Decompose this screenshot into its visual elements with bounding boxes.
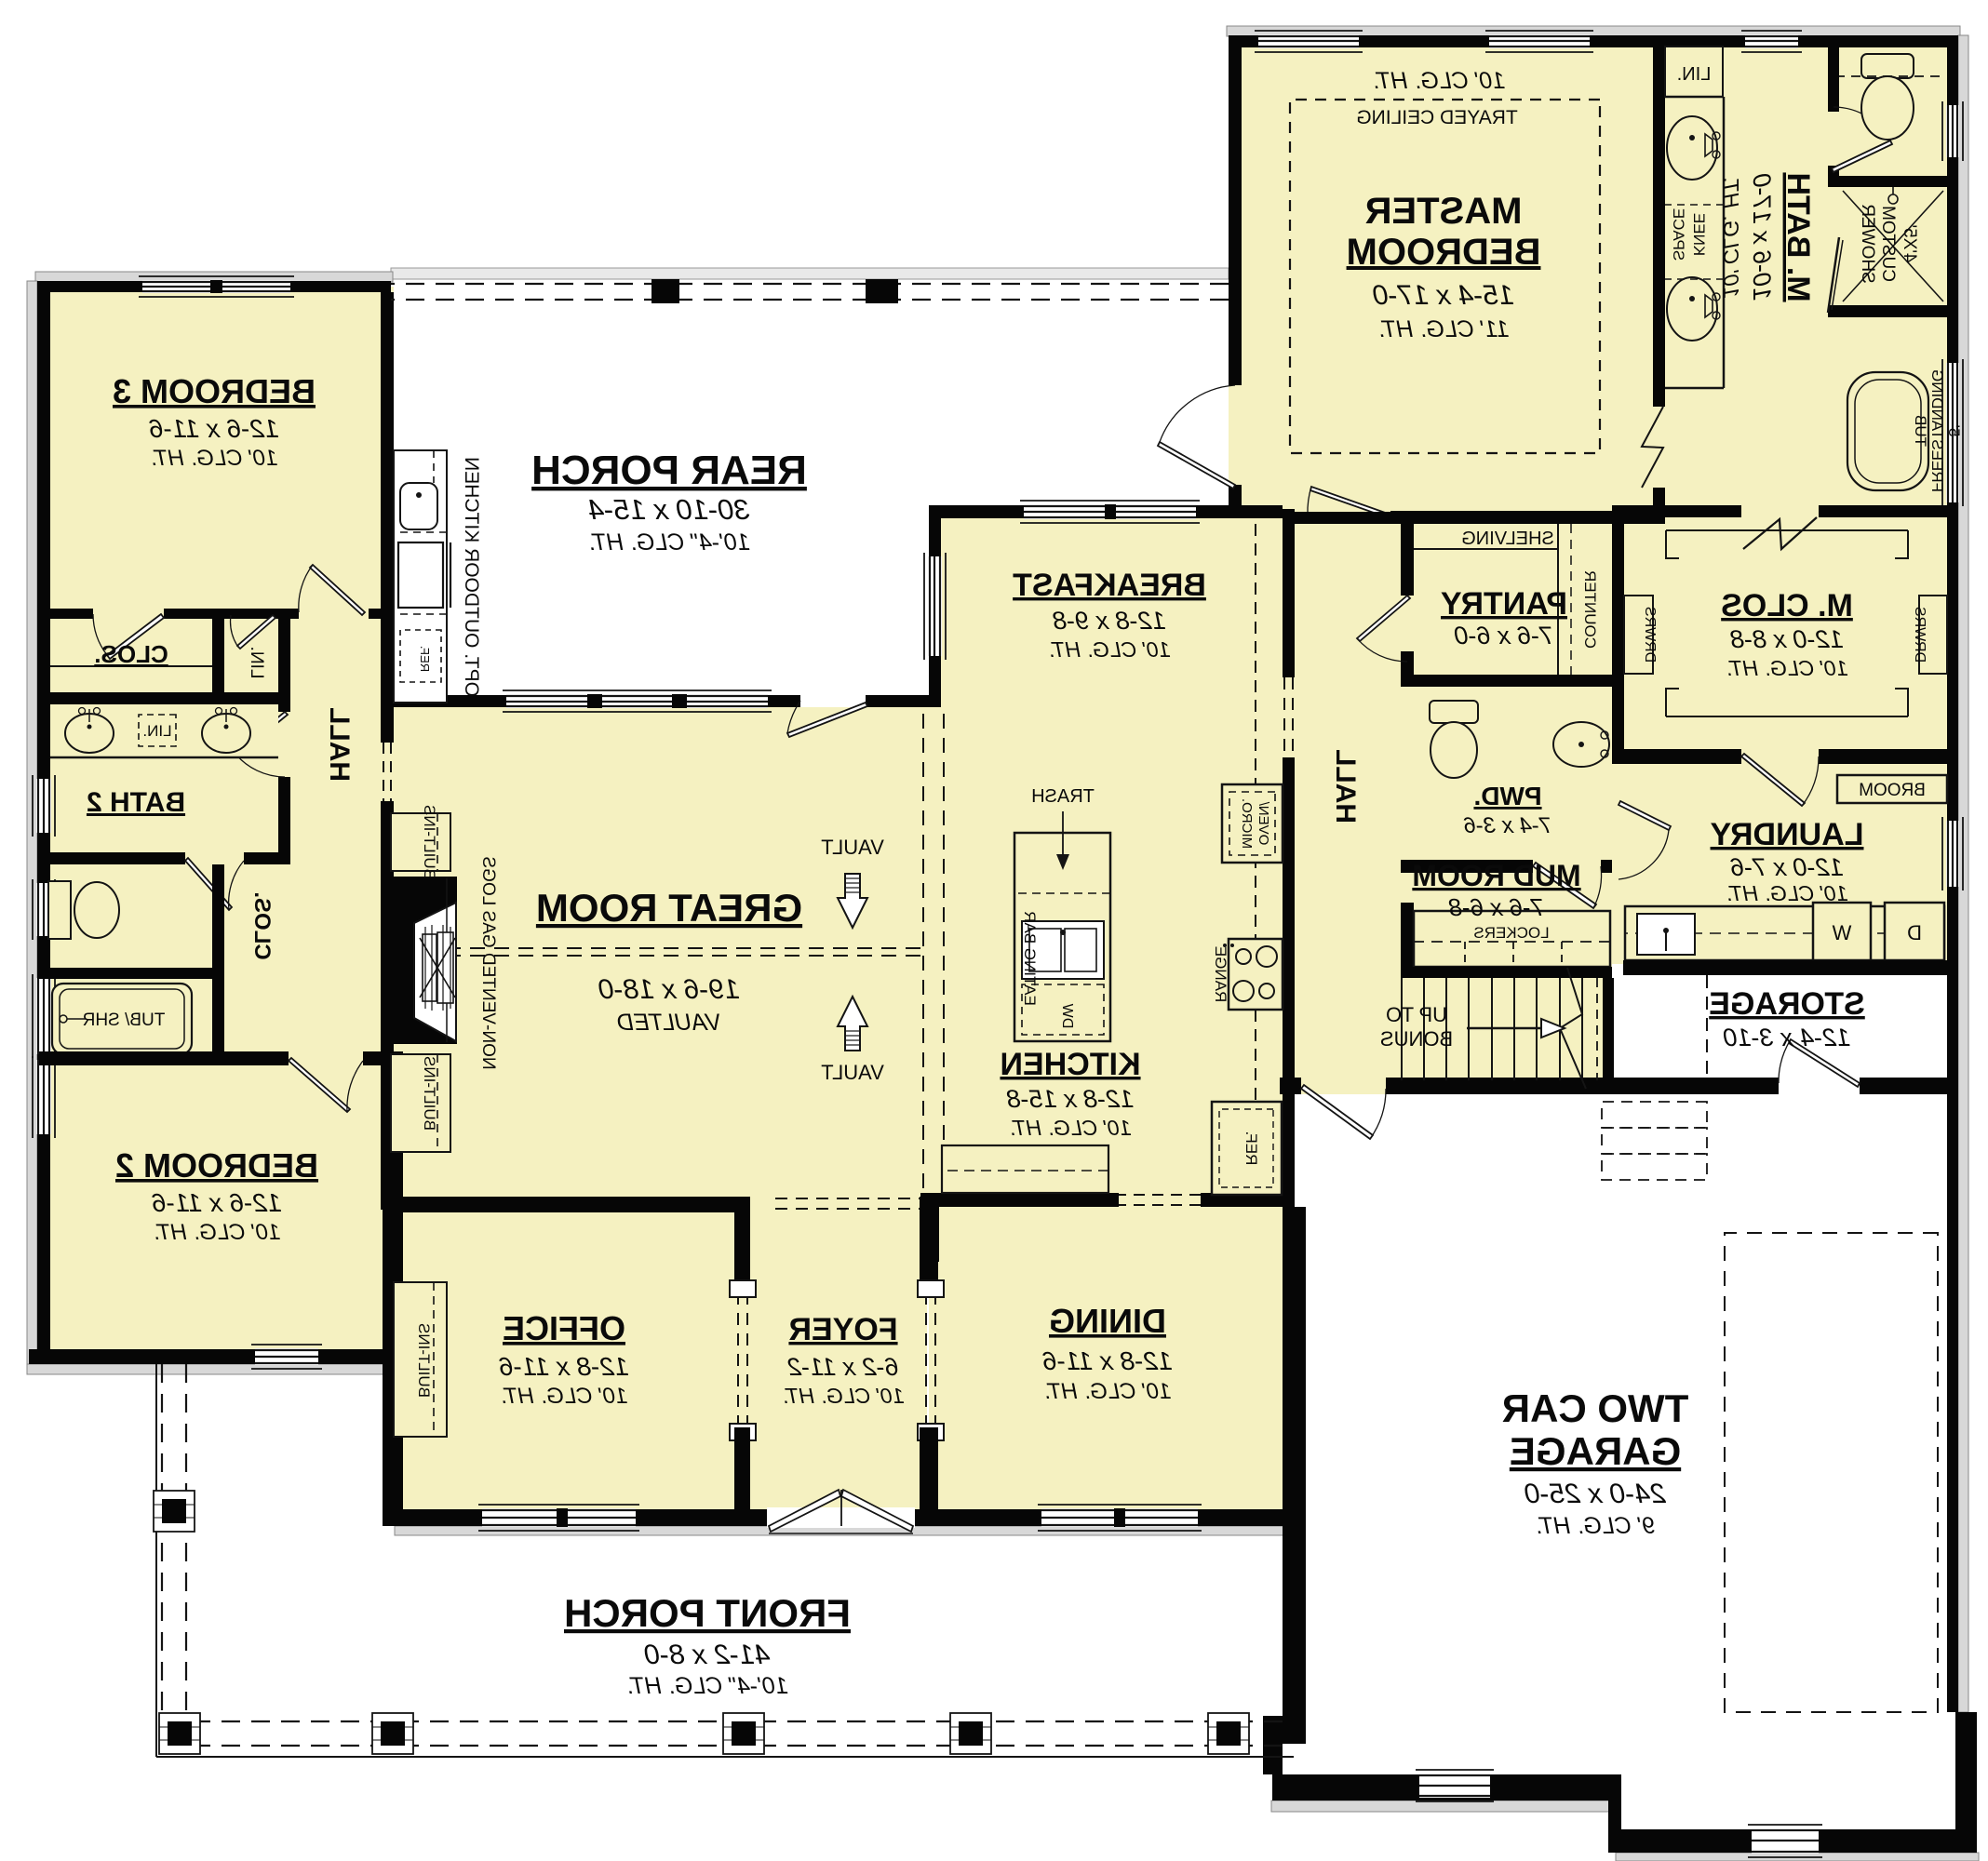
svg-text:STORAGE: STORAGE [1709,986,1865,1022]
svg-text:12-8 x 9-8: 12-8 x 9-8 [1053,607,1166,635]
svg-text:TRASH: TRASH [1031,786,1095,807]
svg-text:FREESTANDING: FREESTANDING [1928,369,1946,492]
svg-text:12-6 x 11-6: 12-6 x 11-6 [149,414,279,443]
svg-text:10' CLG. HT.: 10' CLG. HT. [500,1384,627,1409]
svg-text:LIN.: LIN. [247,647,266,679]
svg-text:VAULT: VAULT [821,1061,884,1084]
svg-text:10' CLG. HT.: 10' CLG. HT. [1373,68,1506,94]
svg-text:10' CLG. HT.: 10' CLG. HT. [1009,1116,1131,1140]
svg-text:REF.: REF. [1242,1131,1260,1166]
svg-text:VAULT: VAULT [821,836,884,859]
svg-text:MASTER: MASTER [1364,191,1522,232]
svg-text:BUILT-INS: BUILT-INS [415,1323,433,1398]
svg-text:TUB: TUB [1912,415,1929,447]
svg-text:OVEN/: OVEN/ [1256,801,1271,846]
svg-text:BUILT-INS: BUILT-INS [421,1056,438,1131]
svg-text:BATH 2: BATH 2 [87,787,185,818]
svg-text:OFFICE: OFFICE [503,1309,625,1347]
svg-text:BUILT-INS: BUILT-INS [421,805,438,879]
svg-text:DRWRS: DRWRS [1642,607,1658,663]
svg-text:UP TO: UP TO [1386,1003,1447,1026]
svg-text:OPT. OUTDOOR KITCHEN: OPT. OUTDOOR KITCHEN [461,457,482,697]
svg-text:10' CLG. HT.: 10' CLG. HT. [1048,637,1170,662]
svg-text:SPACE: SPACE [1670,208,1687,261]
svg-text:9' CLG. HT.: 9' CLG. HT. [1536,1513,1656,1539]
svg-text:TUB/ SHR: TUB/ SHR [83,1011,166,1030]
svg-text:30-10 x 15-4: 30-10 x 15-4 [588,493,750,526]
svg-text:KNEE: KNEE [1690,213,1708,256]
svg-text:BONUS: BONUS [1380,1027,1453,1051]
svg-text:PWD.: PWD. [1473,782,1541,810]
svg-text:GARAGE: GARAGE [1510,1429,1681,1473]
svg-text:REAR PORCH: REAR PORCH [531,448,807,493]
svg-text:10' CLG. HT.: 10' CLG. HT. [153,1220,280,1245]
svg-text:10-6 x 17-0: 10-6 x 17-0 [1748,174,1776,301]
svg-text:M. BATH: M. BATH [1780,172,1816,301]
svg-text:DW: DW [1059,1003,1075,1029]
svg-text:10' CLG. HT.: 10' CLG. HT. [1719,176,1743,298]
svg-text:12-4 x 3-10: 12-4 x 3-10 [1724,1024,1851,1051]
svg-text:BREAKFAST: BREAKFAST [1013,568,1206,603]
svg-text:12-8 x 15-8: 12-8 x 15-8 [1007,1085,1135,1113]
svg-text:RANGE: RANGE [1212,946,1229,1002]
svg-text:LIN.: LIN. [142,722,171,740]
svg-text:LOCKERS: LOCKERS [1473,924,1549,942]
svg-text:BEDROOM: BEDROOM [1347,232,1541,273]
svg-text:COUNTER: COUNTER [1581,570,1599,649]
svg-text:LIN.: LIN. [1677,64,1712,85]
svg-text:19-6 x 18-0: 19-6 x 18-0 [598,974,740,1005]
svg-text:FOYER: FOYER [788,1312,897,1347]
svg-text:7-4 x 3-6: 7-4 x 3-6 [1463,813,1551,838]
svg-text:10' CLG. HT.: 10' CLG. HT. [1043,1379,1171,1404]
svg-text:11' CLG. HT.: 11' CLG. HT. [1378,316,1510,342]
svg-text:DINING: DINING [1049,1302,1166,1340]
svg-text:M. CLOS: M. CLOS [1721,588,1853,623]
svg-text:KITCHEN: KITCHEN [1000,1047,1140,1082]
svg-text:12-6 x 11-6: 12-6 x 11-6 [152,1188,282,1217]
svg-text:BROOM: BROOM [1859,781,1926,800]
svg-text:6-2 x 11-2: 6-2 x 11-2 [787,1353,899,1381]
svg-text:D: D [1907,921,1922,944]
svg-text:10'-4" CLG. HT.: 10'-4" CLG. HT. [588,529,750,556]
svg-text:VAULTED: VAULTED [617,1010,721,1036]
svg-text:HALL: HALL [324,707,355,782]
svg-text:41-2 x 8-0: 41-2 x 8-0 [644,1640,770,1670]
svg-text:SHOWER: SHOWER [1858,204,1877,284]
svg-text:CLOS.: CLOS. [249,891,275,959]
svg-text:GREAT ROOM: GREAT ROOM [536,886,802,930]
svg-text:10' CLG. HT.: 10' CLG. HT. [782,1384,904,1408]
svg-text:10' CLG. HT.: 10' CLG. HT. [1726,656,1847,680]
svg-text:12-8 x 11-6: 12-8 x 11-6 [499,1352,629,1381]
svg-text:12-0 x 8-8: 12-0 x 8-8 [1730,625,1844,653]
svg-text:10' CLG. HT.: 10' CLG. HT. [150,446,277,471]
svg-text:CLOS.: CLOS. [94,640,168,668]
svg-text:NON-VENTED GAS LOGS: NON-VENTED GAS LOGS [478,856,498,1069]
svg-text:BEDROOM 2: BEDROOM 2 [115,1146,318,1185]
svg-text:5': 5' [1945,425,1963,437]
svg-text:LAUNDRY: LAUNDRY [1710,817,1863,852]
svg-text:FRONT PORCH: FRONT PORCH [564,1591,851,1635]
svg-text:BEDROOM 3: BEDROOM 3 [113,372,316,410]
svg-text:EATING BAR: EATING BAR [1021,911,1039,1006]
svg-text:12-0 x 7-6: 12-0 x 7-6 [1729,853,1844,881]
svg-text:MICRO.: MICRO. [1239,798,1255,849]
svg-text:7-6 x 6-8: 7-6 x 6-8 [1448,893,1544,921]
svg-text:REF.: REF. [418,646,432,672]
svg-text:4'X5': 4'X5' [1900,224,1919,262]
svg-text:15-4 x 17-0: 15-4 x 17-0 [1373,280,1514,311]
svg-text:HALL: HALL [1330,749,1361,823]
svg-text:CUSTOM: CUSTOM [1878,206,1898,282]
svg-text:PANTRY: PANTRY [1441,586,1567,622]
svg-text:MUD ROOM: MUD ROOM [1412,859,1580,892]
svg-text:7-6 x 6-0: 7-6 x 6-0 [1455,622,1554,649]
svg-text:10'-4" CLG. HT.: 10'-4" CLG. HT. [626,1673,788,1699]
svg-text:TWO CAR: TWO CAR [1502,1386,1689,1430]
svg-text:10' CLG. HT.: 10' CLG. HT. [1726,881,1847,905]
svg-text:TRAYED CEILING: TRAYED CEILING [1356,107,1517,128]
svg-text:24-0 x 25-0: 24-0 x 25-0 [1525,1479,1667,1509]
svg-text:SHELVING: SHELVING [1461,529,1554,549]
svg-text:12-8 x 11-6: 12-8 x 11-6 [1042,1346,1173,1375]
svg-text:DRWRS: DRWRS [1912,607,1928,663]
svg-text:W: W [1832,921,1851,944]
